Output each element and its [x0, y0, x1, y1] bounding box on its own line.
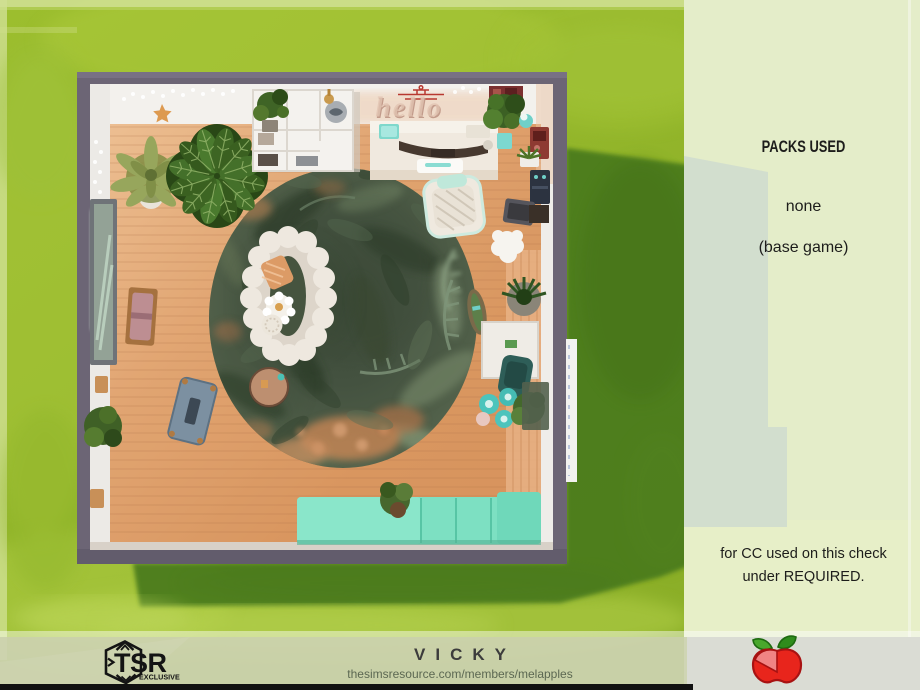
svg-text:hello: hello: [375, 93, 443, 124]
svg-text:EXCLUSIVE: EXCLUSIVE: [139, 673, 180, 682]
